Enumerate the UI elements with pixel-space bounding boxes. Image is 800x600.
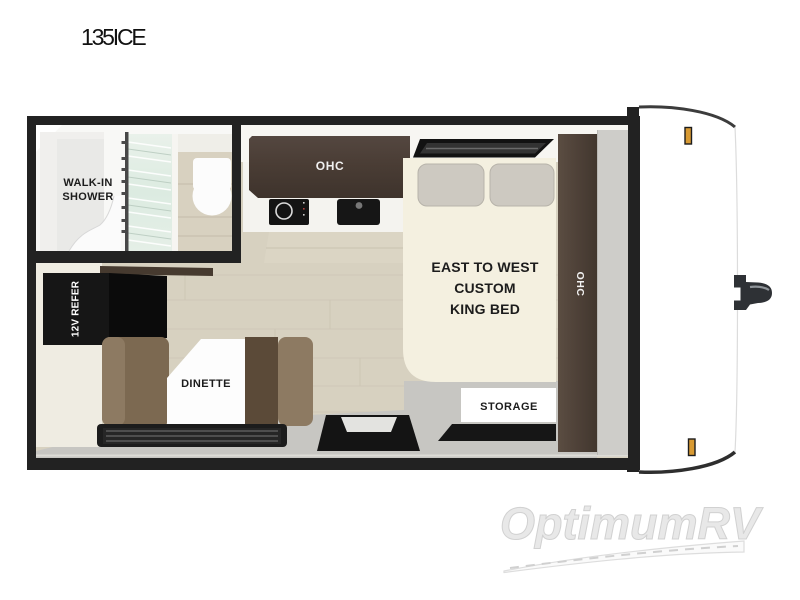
svg-text:DINETTE: DINETTE [181,378,231,390]
svg-text:KING BED: KING BED [450,301,520,317]
svg-text:135ICE: 135ICE [81,24,146,50]
svg-text:STORAGE: STORAGE [480,401,538,413]
svg-text:WALK-IN: WALK-IN [63,177,112,189]
svg-text:OHC: OHC [574,272,586,297]
svg-text:SHOWER: SHOWER [62,191,113,203]
svg-text:OptimumRV: OptimumRV [500,498,764,549]
svg-text:CUSTOM: CUSTOM [454,280,516,296]
svg-text:12V REFER: 12V REFER [71,280,82,337]
svg-text:EAST TO WEST: EAST TO WEST [431,259,538,275]
svg-text:OHC: OHC [316,159,344,173]
